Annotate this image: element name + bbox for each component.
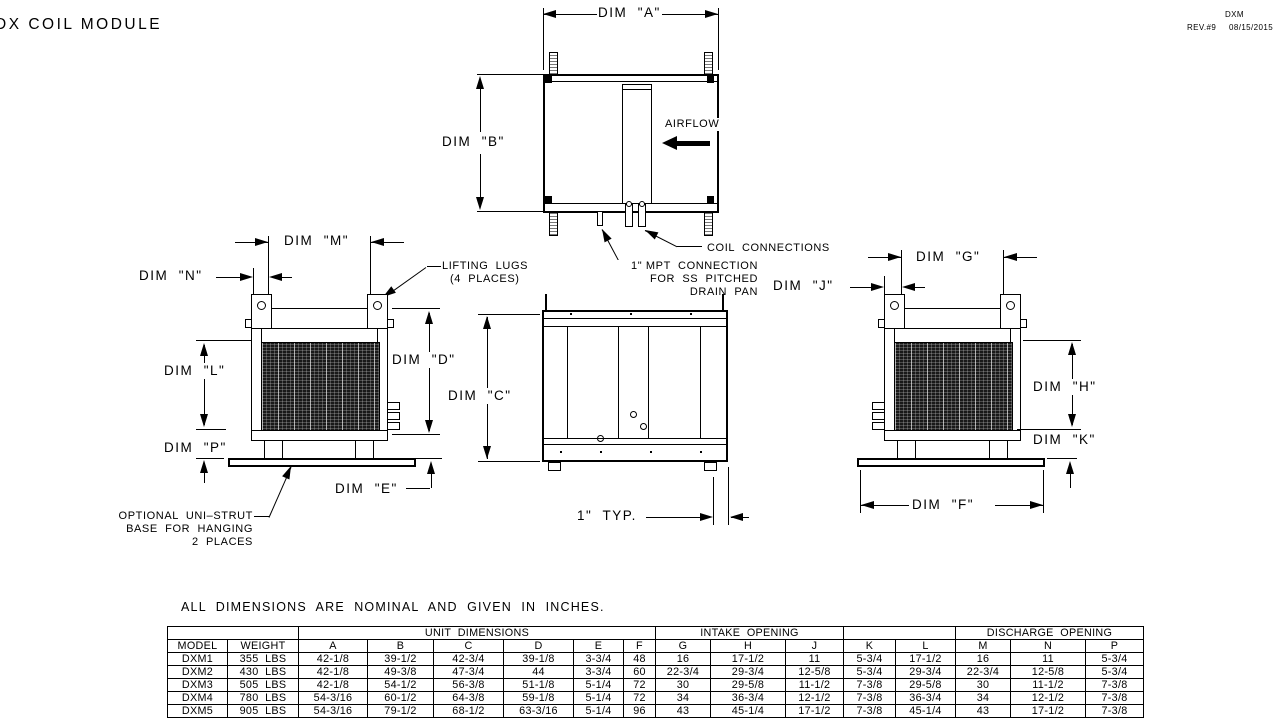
- unistrut-note-line3: 2 PLACES: [110, 536, 254, 549]
- mpt-note-line1: 1" MPT CONNECTION: [615, 260, 759, 273]
- base-bracket: [897, 440, 916, 459]
- coil-connections-leader-arrow: [643, 226, 658, 239]
- lifting-lug: [884, 294, 905, 331]
- dim-d-extension-line: [392, 434, 440, 435]
- dim-c-extension-line: [478, 461, 540, 462]
- lug-connecting-line: [271, 308, 368, 309]
- table-cell: 3-3/4: [574, 666, 624, 679]
- dim-p-extension-line: [196, 458, 224, 459]
- table-cell: 7-3/8: [844, 692, 896, 705]
- dim-p-label: DIM "P": [163, 440, 228, 456]
- housing-top-rail-line: [543, 81, 719, 82]
- coil-connection-port: [626, 201, 632, 207]
- dim-h-arrow: [1068, 414, 1076, 427]
- dim-l-label: DIM "L": [163, 363, 226, 379]
- table-cell: 34: [956, 692, 1011, 705]
- coil-connections-label: COIL CONNECTIONS: [706, 242, 831, 255]
- coil-face: [894, 342, 1013, 433]
- dim-g-arrow: [1004, 253, 1017, 261]
- dim-e-line: [406, 488, 430, 489]
- table-cell: 16: [656, 653, 711, 666]
- bottom-rail-line: [542, 438, 728, 439]
- top-channel: [251, 328, 388, 343]
- table-cell: 7-3/8: [1086, 692, 1144, 705]
- table-row: DXM2430 LBS42-1/849-3/847-3/4443-3/46022…: [168, 666, 1144, 679]
- dim-j-arrow: [871, 283, 884, 291]
- lifting-lugs-note-line1: LIFTING LUGS: [441, 260, 529, 273]
- drawing-sheet: DX COIL MODULE DXM REV.#9 08/15/2015 DIM…: [0, 0, 1280, 728]
- dimensions-table: UNIT DIMENSIONSINTAKE OPENINGDISCHARGE O…: [167, 626, 1144, 718]
- dim-a-extension-line: [718, 8, 719, 70]
- dim-l-arrow: [200, 343, 208, 356]
- airflow-arrow-head: [662, 136, 677, 150]
- connection-tab: [872, 402, 885, 410]
- table-row: DXM3505 LBS42-1/854-1/256-3/851-1/85-1/4…: [168, 679, 1144, 692]
- table-cell: 68-1/2: [434, 705, 504, 718]
- table-cell: 5-3/4: [1086, 666, 1144, 679]
- coil-section-line: [622, 89, 652, 90]
- table-cell: 17-1/2: [786, 705, 844, 718]
- dim-h-extension-line: [1017, 429, 1081, 430]
- base-bracket: [264, 440, 283, 459]
- dim-f-arrow: [861, 501, 874, 509]
- table-cell: 5-1/4: [574, 679, 624, 692]
- table-cell: 34: [656, 692, 711, 705]
- rivet-dot: [630, 313, 632, 315]
- dim-l-extension-line: [196, 340, 252, 341]
- table-cell: 905 LBS: [228, 705, 299, 718]
- dim-a-arrow: [705, 10, 718, 18]
- dim-c-label: DIM "C": [447, 388, 513, 404]
- dim-n-line: [282, 277, 292, 278]
- table-cell: 39-1/2: [368, 653, 434, 666]
- table-cell: 59-1/8: [504, 692, 574, 705]
- table-header-cell: H: [711, 640, 786, 653]
- table-cell: 36-3/4: [711, 692, 786, 705]
- titleblock-rev: REV.#9: [1186, 23, 1217, 32]
- dim-j-line: [915, 287, 925, 288]
- table-header-cell: M: [956, 640, 1011, 653]
- dim-f-label: DIM "F": [911, 497, 975, 513]
- dim-m-extension-line: [268, 236, 269, 296]
- dim-n-arrow: [269, 273, 282, 281]
- rivet-dot: [650, 451, 652, 453]
- uni-strut-base: [857, 458, 1045, 467]
- drain-leader-arrow: [598, 227, 611, 242]
- table-cell: 56-3/8: [434, 679, 504, 692]
- table-header-cell: B: [368, 640, 434, 653]
- table-cell: 17-1/2: [896, 653, 956, 666]
- table-header-cell: C: [434, 640, 504, 653]
- dim-n-arrow: [240, 273, 253, 281]
- typ-extension-line: [713, 477, 714, 525]
- table-cell: 96: [624, 705, 656, 718]
- dim-c-arrow: [483, 316, 491, 329]
- table-cell: DXM3: [168, 679, 228, 692]
- unistrut-note-line1: OPTIONAL UNI–STRUT: [110, 510, 254, 523]
- dim-d-arrow: [425, 311, 433, 324]
- table-cell: 17-1/2: [711, 653, 786, 666]
- unistrut-leader-line: [254, 516, 269, 517]
- mpt-note-line3: DRAIN PAN: [615, 286, 759, 299]
- table-cell: 29-3/4: [711, 666, 786, 679]
- mounting-bracket: [704, 212, 713, 236]
- dim-a-label: DIM "A": [597, 5, 662, 21]
- table-cell: 47-3/4: [434, 666, 504, 679]
- dim-e-label: DIM "E": [334, 481, 399, 497]
- dim-l-line: [204, 345, 205, 425]
- dim-f-extension-line: [1043, 470, 1044, 513]
- rivet-dot: [570, 313, 572, 315]
- panel-stile-line: [648, 326, 649, 439]
- table-row: DXM1355 LBS42-1/839-1/242-3/439-1/83-3/4…: [168, 653, 1144, 666]
- panel-fastener: [630, 411, 637, 418]
- dim-e-arrow: [427, 461, 435, 474]
- table-cell: 12-5/8: [1011, 666, 1086, 679]
- drain-connection-stub: [597, 211, 603, 226]
- dim-j-label: DIM "J": [772, 278, 835, 294]
- table-cell: 30: [956, 679, 1011, 692]
- table-header-cell: WEIGHT: [228, 640, 299, 653]
- table-cell: 72: [624, 679, 656, 692]
- lug-edge-line: [545, 294, 547, 310]
- table-header-cell: J: [786, 640, 844, 653]
- table-cell: 12-1/2: [786, 692, 844, 705]
- side-tab: [878, 319, 885, 328]
- connection-tab: [387, 422, 400, 430]
- table-header-cell: K: [844, 640, 896, 653]
- dim-j-extension-line: [884, 276, 885, 296]
- table-cell: 42-1/8: [299, 653, 368, 666]
- table-cell: 11: [786, 653, 844, 666]
- table-cell: 29-3/4: [896, 666, 956, 679]
- table-cell: 780 LBS: [228, 692, 299, 705]
- rivet-dot: [700, 451, 702, 453]
- dim-d-extension-line: [392, 308, 440, 309]
- panel-stile-line: [700, 326, 701, 439]
- dim-k-arrow: [1066, 461, 1074, 474]
- dim-l-arrow: [200, 414, 208, 427]
- coil-connection-port: [639, 201, 645, 207]
- table-cell: 51-1/8: [504, 679, 574, 692]
- table-header-row: MODELWEIGHTABCDEFGHJKLMNP: [168, 640, 1144, 653]
- dim-m-label: DIM "M": [283, 233, 350, 249]
- dim-m-arrow: [371, 238, 384, 246]
- table-header-cell: D: [504, 640, 574, 653]
- base-bracket: [355, 440, 374, 459]
- table-cell: 39-1/8: [504, 653, 574, 666]
- panel-stile-line: [567, 326, 568, 439]
- dim-n-label: DIM "N": [138, 268, 204, 284]
- table-cell: 505 LBS: [228, 679, 299, 692]
- table-row: DXM5905 LBS54-3/1679-1/268-1/263-3/165-1…: [168, 705, 1144, 718]
- dim-j-line: [850, 287, 872, 288]
- table-group-row: UNIT DIMENSIONSINTAKE OPENINGDISCHARGE O…: [168, 627, 1144, 640]
- dim-b-extension-line: [477, 211, 543, 212]
- lifting-lugs-leader-line: [427, 266, 441, 267]
- table-cell: 12-1/2: [1011, 692, 1086, 705]
- table-cell: 48: [624, 653, 656, 666]
- lug-hole: [257, 301, 266, 310]
- table-cell: 30: [656, 679, 711, 692]
- table-cell: DXM2: [168, 666, 228, 679]
- table-cell: 36-3/4: [896, 692, 956, 705]
- dim-g-arrow: [888, 253, 901, 261]
- table-cell: 7-3/8: [1086, 679, 1144, 692]
- lug-hole: [1006, 301, 1015, 310]
- table-cell: 42-3/4: [434, 653, 504, 666]
- table-cell: 5-3/4: [1086, 653, 1144, 666]
- dim-b-arrow: [476, 197, 484, 210]
- airflow-arrow-shaft: [676, 141, 710, 146]
- dim-h-arrow: [1068, 342, 1076, 355]
- dim-g-label: DIM "G": [915, 249, 981, 265]
- table-cell: 355 LBS: [228, 653, 299, 666]
- table-cell: 49-3/8: [368, 666, 434, 679]
- typ-arrow: [730, 513, 743, 521]
- lug-edge-line: [722, 294, 724, 310]
- coil-connection-stub: [625, 204, 633, 227]
- corner-gusset: [707, 196, 714, 203]
- corner-gusset: [707, 76, 714, 83]
- table-header-cell: N: [1011, 640, 1086, 653]
- table-header-cell: L: [896, 640, 956, 653]
- connection-tab: [872, 422, 885, 430]
- table-cell: 29-5/8: [896, 679, 956, 692]
- lifting-lug: [367, 294, 388, 331]
- table-header-cell: F: [624, 640, 656, 653]
- corner-gusset: [545, 76, 552, 83]
- table-cell: 42-1/8: [299, 679, 368, 692]
- table-cell: 16: [956, 653, 1011, 666]
- lug-hole: [373, 301, 382, 310]
- dim-b-extension-line: [477, 74, 543, 75]
- table-cell: 430 LBS: [228, 666, 299, 679]
- table-cell: 22-3/4: [956, 666, 1011, 679]
- dim-p-arrow: [200, 460, 208, 473]
- table-group-cell: [844, 627, 956, 640]
- table-cell: 5-1/4: [574, 705, 624, 718]
- coil-face: [261, 342, 380, 433]
- table-cell: 7-3/8: [844, 705, 896, 718]
- lifting-lug: [1000, 294, 1021, 331]
- table-cell: 72: [624, 692, 656, 705]
- bottom-rail-line: [542, 444, 728, 445]
- panel-fastener: [640, 423, 647, 430]
- connection-tab: [387, 402, 400, 410]
- foot: [548, 462, 561, 471]
- side-tab: [1020, 319, 1027, 328]
- table-cell: 22-3/4: [656, 666, 711, 679]
- table-cell: 45-1/4: [711, 705, 786, 718]
- coil-section-plan: [622, 84, 652, 204]
- top-channel: [884, 328, 1021, 343]
- table-cell: 29-5/8: [711, 679, 786, 692]
- dim-b-label: DIM "B": [441, 134, 506, 150]
- airflow-label: AIRFLOW: [664, 118, 720, 131]
- coil-connections-leader-line: [677, 246, 702, 247]
- table-cell: 11-1/2: [1011, 679, 1086, 692]
- dim-d-line: [429, 313, 430, 431]
- dim-b-arrow: [476, 76, 484, 89]
- table-cell: 44: [504, 666, 574, 679]
- titleblock-code: DXM: [1224, 10, 1245, 19]
- mounting-bracket: [549, 52, 558, 75]
- dim-l-extension-line: [196, 429, 226, 430]
- titleblock-date: 08/15/2015: [1228, 23, 1274, 32]
- dim-k-label: DIM "K": [1032, 432, 1097, 448]
- table-cell: 60-1/2: [368, 692, 434, 705]
- table-group-cell: UNIT DIMENSIONS: [299, 627, 656, 640]
- dim-c-arrow: [483, 446, 491, 459]
- lifting-lugs-note-line2: (4 PLACES): [449, 273, 521, 286]
- side-tab: [387, 319, 394, 328]
- page-title: DX COIL MODULE: [0, 16, 163, 34]
- panel-stile-line: [618, 326, 619, 439]
- foot: [704, 462, 717, 471]
- table-header-cell: MODEL: [168, 640, 228, 653]
- base-bracket: [989, 440, 1008, 459]
- table-cell: DXM5: [168, 705, 228, 718]
- corner-gusset: [545, 196, 552, 203]
- mounting-bracket: [549, 212, 558, 236]
- mounting-bracket: [704, 52, 713, 75]
- dim-m-arrow: [255, 238, 268, 246]
- table-cell: 60: [624, 666, 656, 679]
- table-cell: 43: [656, 705, 711, 718]
- side-tab: [245, 319, 252, 328]
- dim-d-label: DIM "D": [391, 352, 457, 368]
- typ-extension-line: [728, 467, 729, 525]
- coil-connection-stub: [638, 204, 646, 227]
- table-cell: 63-3/16: [504, 705, 574, 718]
- table-cell: DXM1: [168, 653, 228, 666]
- table-group-cell: [168, 627, 299, 640]
- table-cell: 11-1/2: [786, 679, 844, 692]
- dimensions-note: ALL DIMENSIONS ARE NOMINAL AND GIVEN IN …: [180, 600, 606, 614]
- table-cell: 5-3/4: [844, 666, 896, 679]
- table-header-cell: E: [574, 640, 624, 653]
- mpt-note-line2: FOR SS PITCHED: [615, 273, 759, 286]
- dim-j-arrow: [902, 283, 915, 291]
- connection-tab: [872, 412, 885, 420]
- dim-e-extension-line: [414, 458, 442, 459]
- table-cell: 11: [1011, 653, 1086, 666]
- table-cell: 54-1/2: [368, 679, 434, 692]
- rivet-dot: [690, 313, 692, 315]
- table-group-cell: DISCHARGE OPENING: [956, 627, 1144, 640]
- table-cell: 79-1/2: [368, 705, 434, 718]
- dim-k-extension-line: [1047, 458, 1077, 459]
- rivet-dot: [560, 451, 562, 453]
- table-group-cell: INTAKE OPENING: [656, 627, 844, 640]
- table-cell: 17-1/2: [1011, 705, 1086, 718]
- lug-hole: [890, 301, 899, 310]
- table-row: DXM4780 LBS54-3/1660-1/264-3/859-1/85-1/…: [168, 692, 1144, 705]
- table-cell: 54-3/16: [299, 692, 368, 705]
- uni-strut-base: [228, 458, 416, 467]
- dim-c-extension-line: [478, 314, 540, 315]
- dim-h-label: DIM "H": [1032, 379, 1098, 395]
- table-cell: 3-3/4: [574, 653, 624, 666]
- table-cell: 12-5/8: [786, 666, 844, 679]
- dim-n-line: [216, 277, 240, 278]
- table-cell: 42-1/8: [299, 666, 368, 679]
- typ-label: 1" TYP.: [576, 508, 638, 524]
- table-header-cell: P: [1086, 640, 1144, 653]
- table-cell: 5-3/4: [844, 653, 896, 666]
- unistrut-note-line2: BASE FOR HANGING: [110, 523, 254, 536]
- rivet-dot: [600, 451, 602, 453]
- table-header-cell: G: [656, 640, 711, 653]
- table-cell: 7-3/8: [1086, 705, 1144, 718]
- dim-f-arrow: [1030, 501, 1043, 509]
- top-rail-line: [542, 318, 728, 319]
- table-header-cell: A: [299, 640, 368, 653]
- table-cell: 43: [956, 705, 1011, 718]
- dim-h-extension-line: [1023, 340, 1081, 341]
- lifting-lug: [251, 294, 272, 331]
- table-cell: 64-3/8: [434, 692, 504, 705]
- typ-arrow: [700, 513, 713, 521]
- table-cell: 54-3/16: [299, 705, 368, 718]
- spec-table: UNIT DIMENSIONSINTAKE OPENINGDISCHARGE O…: [167, 626, 1144, 718]
- table-cell: 45-1/4: [896, 705, 956, 718]
- lug-connecting-line: [904, 308, 1001, 309]
- dim-a-arrow: [543, 10, 556, 18]
- table-cell: 5-1/4: [574, 692, 624, 705]
- table-cell: DXM4: [168, 692, 228, 705]
- dim-n-extension-line: [253, 268, 254, 296]
- connection-tab: [387, 412, 400, 420]
- typ-dim-line: [646, 517, 700, 518]
- dim-d-arrow: [425, 420, 433, 433]
- table-cell: 7-3/8: [844, 679, 896, 692]
